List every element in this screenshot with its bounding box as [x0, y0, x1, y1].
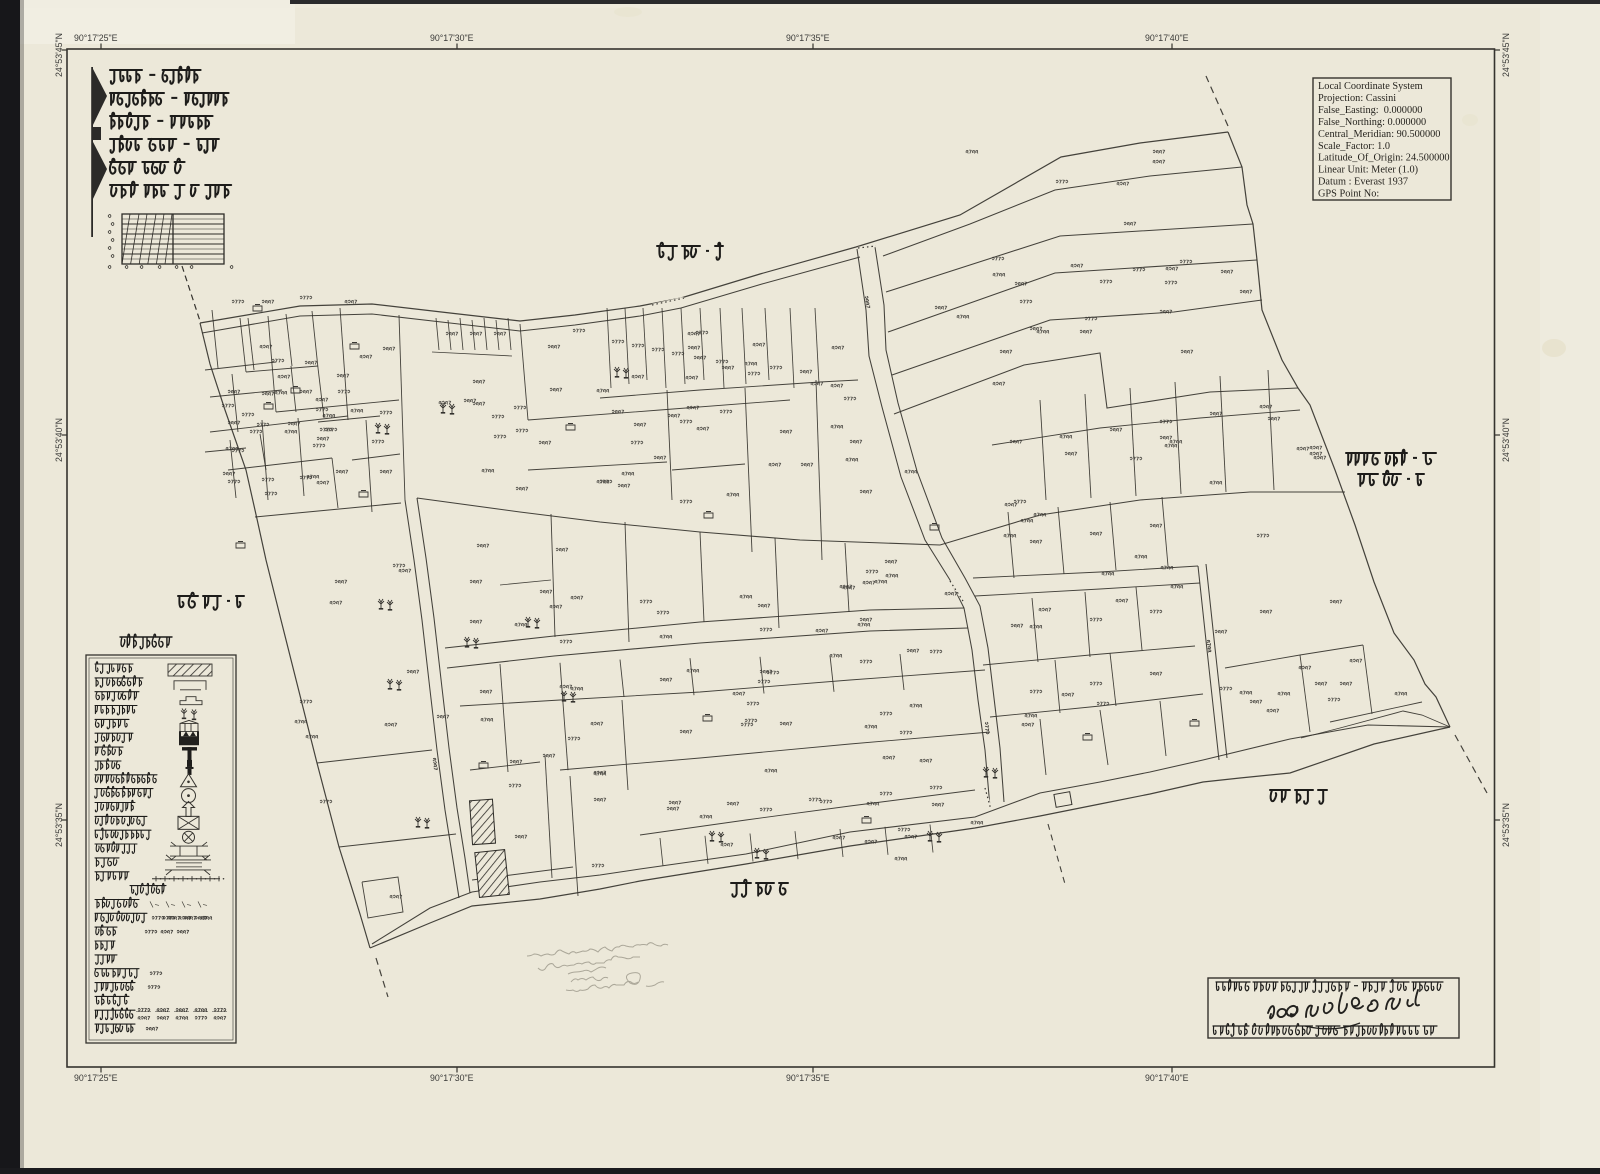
svg-text:24°53'35"N: 24°53'35"N	[1501, 803, 1511, 847]
svg-text:Projection: Cassini: Projection: Cassini	[1318, 93, 1396, 104]
svg-text:24°53'45"N: 24°53'45"N	[1501, 33, 1511, 77]
svg-text:90°17'40"E: 90°17'40"E	[1145, 1073, 1189, 1083]
svg-text:24°53'40"N: 24°53'40"N	[1501, 418, 1511, 462]
svg-text:Local Coordinate System: Local Coordinate System	[1318, 81, 1423, 92]
svg-text:90°17'35"E: 90°17'35"E	[786, 33, 830, 43]
svg-text:24°53'35"N: 24°53'35"N	[54, 803, 64, 847]
svg-text:90°17'25"E: 90°17'25"E	[74, 33, 118, 43]
svg-text:Central_Meridian: 90.500000: Central_Meridian: 90.500000	[1318, 129, 1440, 140]
svg-text:Scale_Factor: 1.0: Scale_Factor: 1.0	[1318, 141, 1390, 152]
svg-text:Linear Unit: Meter (1.0): Linear Unit: Meter (1.0)	[1318, 165, 1418, 176]
svg-text:Datum : Everast 1937: Datum : Everast 1937	[1318, 177, 1408, 188]
svg-text:Latitude_Of_Origin: 24.500000: Latitude_Of_Origin: 24.500000	[1318, 153, 1450, 164]
svg-text:90°17'30"E: 90°17'30"E	[430, 1073, 474, 1083]
svg-text:24°53'40"N: 24°53'40"N	[54, 418, 64, 462]
svg-text:24°53'45"N: 24°53'45"N	[54, 33, 64, 77]
svg-text:GPS Point No:: GPS Point No:	[1318, 189, 1379, 200]
svg-text:90°17'35"E: 90°17'35"E	[786, 1073, 830, 1083]
svg-text:False_Northing: 0.000000: False_Northing: 0.000000	[1318, 117, 1426, 128]
svg-text:90°17'40"E: 90°17'40"E	[1145, 33, 1189, 43]
svg-text:90°17'25"E: 90°17'25"E	[74, 1073, 118, 1083]
svg-text:90°17'30"E: 90°17'30"E	[430, 33, 474, 43]
svg-text:False_Easting: 0.000000: False_Easting: 0.000000	[1318, 105, 1422, 116]
